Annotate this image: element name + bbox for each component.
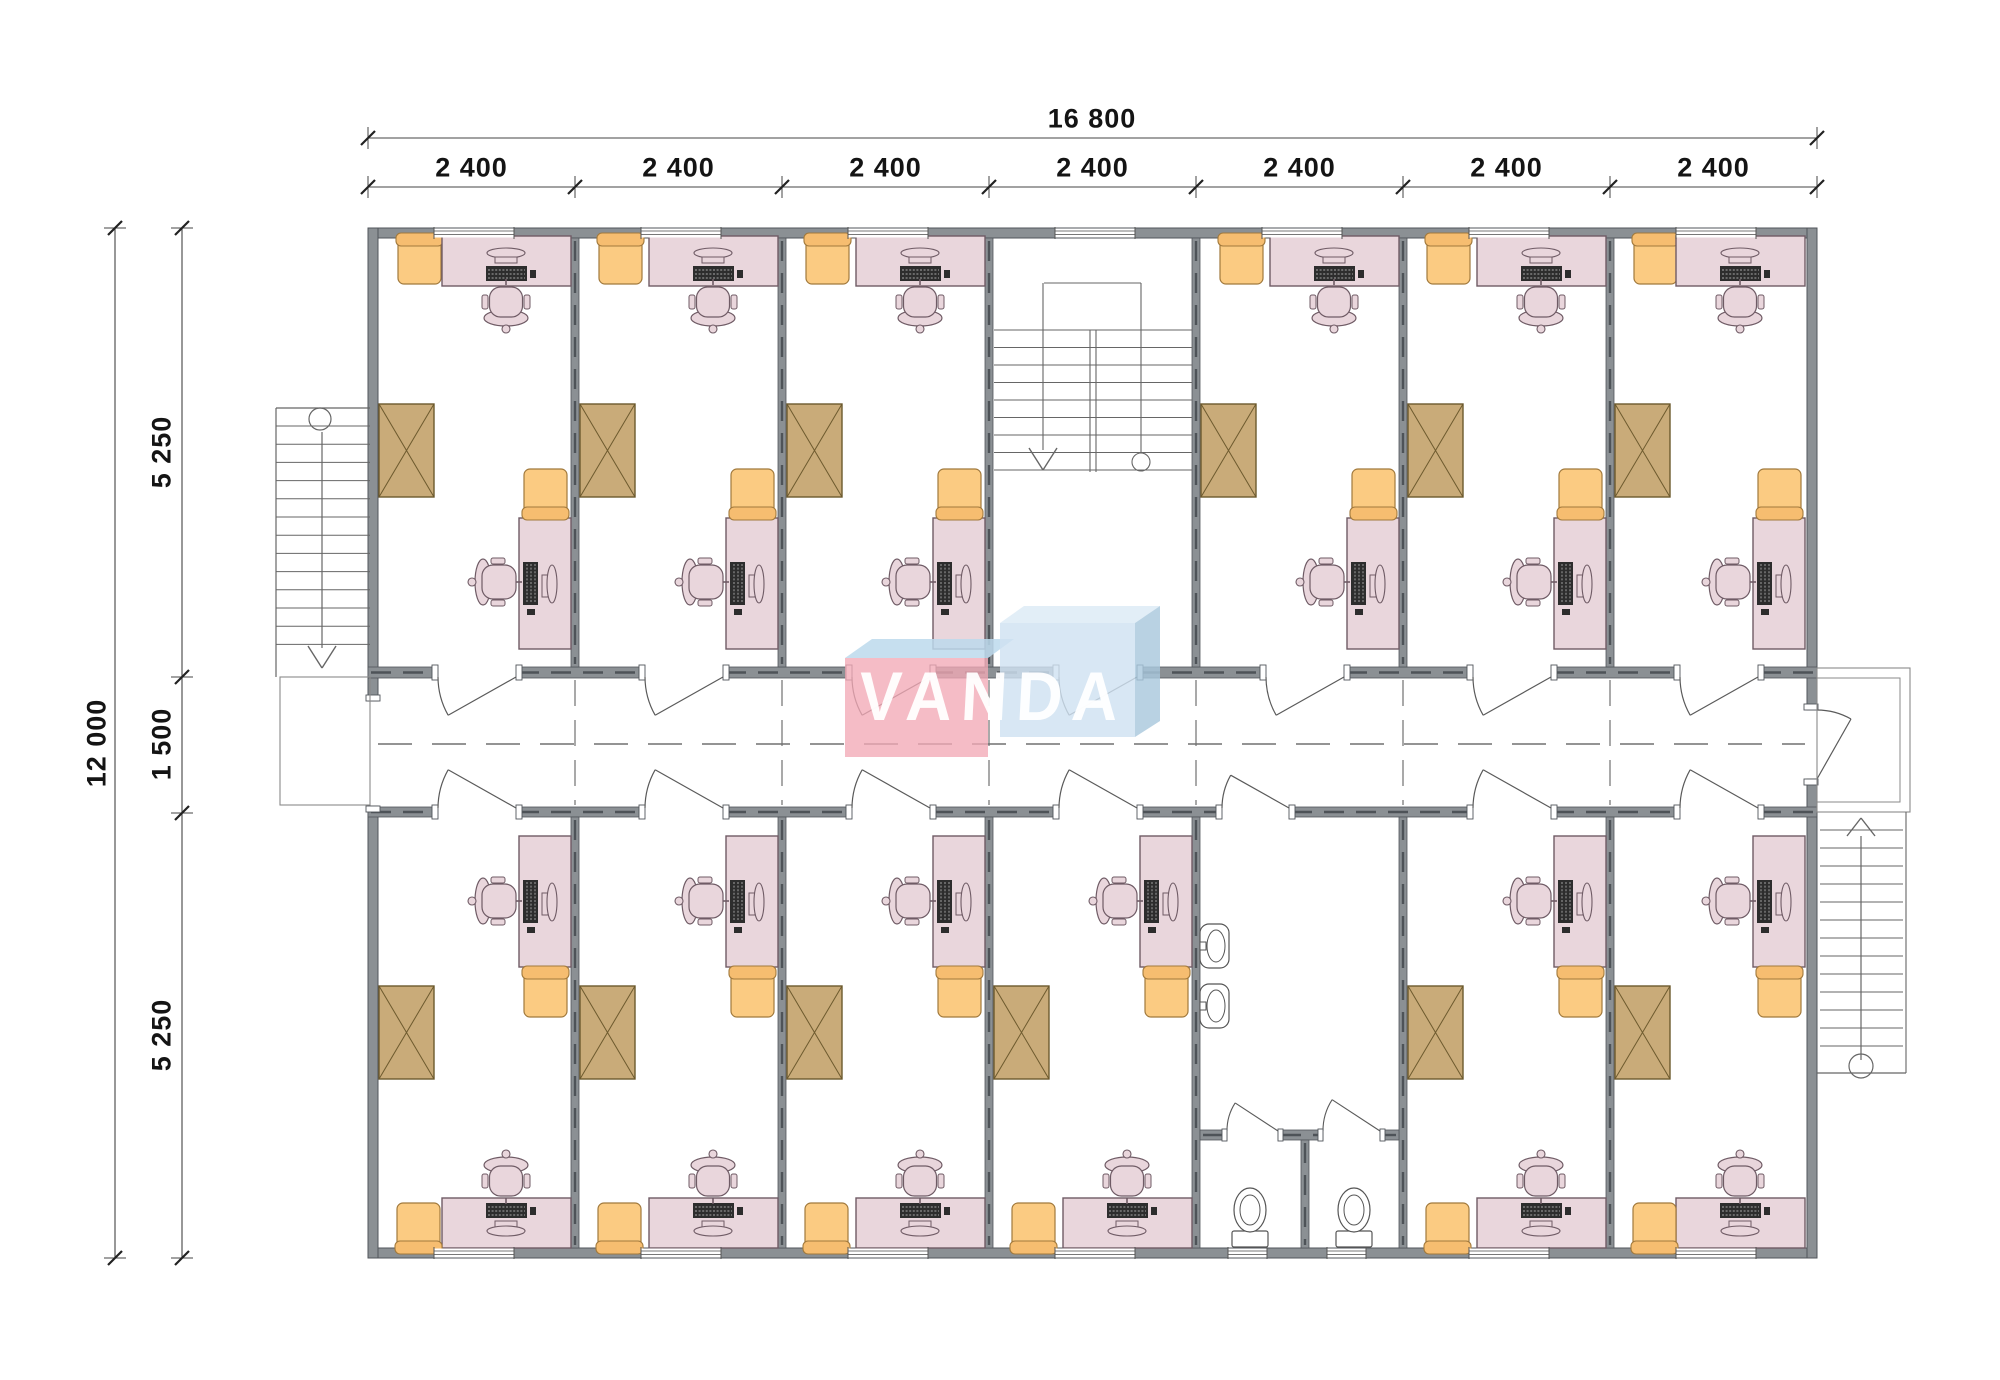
- floor-plan-page: VANDA 16 8002 4002 4002 4002 4002 4002 4…: [0, 0, 2000, 1380]
- interior-wall: [1289, 807, 1473, 817]
- window: [1327, 1247, 1366, 1259]
- interior-wall: [1192, 238, 1200, 667]
- dimension-label-left-segment-3: 5 250: [147, 999, 178, 1072]
- office-chair: [689, 1150, 737, 1204]
- office-chair: [896, 1150, 944, 1204]
- visitor-armchair: [1143, 966, 1190, 1017]
- office-chair: [896, 279, 944, 333]
- visitor-armchair: [596, 1203, 643, 1254]
- office-chair: [1503, 558, 1557, 606]
- interior-wall: [1551, 667, 1680, 678]
- interior-wall: [1278, 1130, 1323, 1140]
- interior-wall: [985, 238, 993, 667]
- room-door: [1260, 665, 1350, 715]
- window: [641, 227, 721, 239]
- interior-wall: [1551, 807, 1680, 817]
- room-door: [1216, 775, 1295, 819]
- office-chair: [1517, 1150, 1565, 1204]
- office-desk: [442, 1198, 571, 1248]
- dimension-label-left-total: 12 000: [82, 699, 113, 788]
- office-chair: [1296, 558, 1350, 606]
- office-desk: [1676, 236, 1805, 286]
- exterior-wall: [368, 806, 378, 1258]
- interior-wall: [571, 238, 579, 667]
- interior-wall: [1192, 817, 1200, 1248]
- office-desk: [1477, 236, 1606, 286]
- office-desk: [726, 836, 778, 967]
- interior-wall: [723, 807, 852, 817]
- dimension-label-bay-6: 2 400: [1470, 153, 1543, 184]
- visitor-armchair: [936, 469, 983, 520]
- office-desk: [1753, 836, 1805, 967]
- left-exterior-stair: [276, 408, 370, 805]
- interior-wall: [1606, 238, 1614, 667]
- room-door: [1053, 770, 1143, 819]
- office-chair: [1103, 1150, 1151, 1204]
- storage-cabinet: [787, 986, 842, 1079]
- storage-cabinet: [787, 404, 842, 497]
- office-chair: [482, 1150, 530, 1204]
- office-desk: [1753, 518, 1805, 649]
- office-chair: [1503, 877, 1557, 925]
- visitor-armchair: [729, 966, 776, 1017]
- window: [848, 1247, 928, 1259]
- visitor-armchair: [729, 469, 776, 520]
- office-chair: [1716, 279, 1764, 333]
- visitor-armchair: [1350, 469, 1397, 520]
- visitor-armchair: [1632, 233, 1679, 284]
- room-door: [432, 770, 522, 819]
- visitor-armchair: [1010, 1203, 1057, 1254]
- room-door: [639, 665, 729, 715]
- office-desk: [856, 1198, 985, 1248]
- dimension-label-bay-4: 2 400: [1056, 153, 1129, 184]
- visitor-armchair: [1631, 1203, 1678, 1254]
- storage-cabinet: [1201, 404, 1256, 497]
- corridor-left-opening: [366, 695, 380, 812]
- toilet: [1232, 1188, 1268, 1247]
- room-door: [432, 665, 522, 715]
- interior-wall: [1758, 667, 1817, 678]
- window: [1262, 227, 1342, 239]
- office-desk: [1554, 836, 1606, 967]
- storage-cabinet: [1615, 404, 1670, 497]
- toilet: [1336, 1188, 1372, 1247]
- visitor-armchair: [1424, 1203, 1471, 1254]
- room-door: [1674, 665, 1764, 715]
- office-chair: [1716, 1150, 1764, 1204]
- visitor-armchair: [395, 1203, 442, 1254]
- interior-wall: [778, 238, 786, 667]
- doors-and-windows: [366, 227, 1851, 1259]
- office-chair: [468, 877, 522, 925]
- office-desk: [1270, 236, 1399, 286]
- office-chair: [1089, 877, 1143, 925]
- wash-basin: [1200, 984, 1229, 1028]
- office-desk: [933, 518, 985, 649]
- visitor-armchair: [1218, 233, 1265, 284]
- interior-wall: [516, 667, 645, 678]
- window: [434, 227, 514, 239]
- visitor-armchair: [522, 469, 569, 520]
- interior-wall: [1301, 1140, 1309, 1248]
- window: [1469, 1247, 1549, 1259]
- office-desk: [1347, 518, 1399, 649]
- office-chair: [468, 558, 522, 606]
- storage-cabinet: [580, 986, 635, 1079]
- visitor-armchair: [1557, 469, 1604, 520]
- office-desk: [519, 836, 571, 967]
- storage-cabinet: [379, 986, 434, 1079]
- exterior-wall: [1807, 228, 1817, 710]
- visitor-armchair: [936, 966, 983, 1017]
- dimension-label-top-total: 16 800: [1048, 104, 1137, 135]
- interior-wall: [1606, 817, 1614, 1248]
- window: [1469, 227, 1549, 239]
- visitor-armchair: [1557, 966, 1604, 1017]
- office-chair: [482, 279, 530, 333]
- office-chair: [882, 877, 936, 925]
- right-exterior-stair: [1817, 668, 1910, 1078]
- visitor-armchair: [597, 233, 644, 284]
- visitor-armchair: [804, 233, 851, 284]
- visitor-armchair: [1756, 469, 1803, 520]
- dimension-label-bay-2: 2 400: [642, 153, 715, 184]
- window: [848, 227, 928, 239]
- visitor-armchair: [1425, 233, 1472, 284]
- office-chair: [1310, 279, 1358, 333]
- window: [434, 1247, 514, 1259]
- stall-door: [1222, 1103, 1283, 1141]
- dimension-label-bay-7: 2 400: [1677, 153, 1750, 184]
- dimension-label-bay-5: 2 400: [1263, 153, 1336, 184]
- storage-cabinet: [994, 986, 1049, 1079]
- office-desk: [726, 518, 778, 649]
- storage-cabinet: [1408, 404, 1463, 497]
- interior-wall: [368, 667, 438, 678]
- room-door: [1467, 665, 1557, 715]
- visitor-armchair: [522, 966, 569, 1017]
- office-chair: [1517, 279, 1565, 333]
- window: [1676, 227, 1756, 239]
- office-desk: [856, 236, 985, 286]
- exterior-wall: [1807, 779, 1817, 1258]
- interior-wall: [516, 807, 645, 817]
- interior-wall: [723, 667, 852, 678]
- office-chair: [1702, 877, 1756, 925]
- office-chair: [1702, 558, 1756, 606]
- storage-cabinet: [580, 404, 635, 497]
- office-desk: [933, 836, 985, 967]
- dimension-label-left-segment-2: 1 500: [147, 708, 178, 781]
- office-desk: [442, 236, 571, 286]
- window: [1055, 227, 1135, 239]
- office-desk: [649, 1198, 778, 1248]
- office-desk: [1554, 518, 1606, 649]
- room-door: [1467, 770, 1557, 819]
- interior-wall: [1399, 238, 1407, 667]
- office-desk: [1063, 1198, 1192, 1248]
- storage-cabinet: [379, 404, 434, 497]
- visitor-armchair: [1756, 966, 1803, 1017]
- storage-cabinet: [1408, 986, 1463, 1079]
- wash-basin: [1200, 924, 1229, 968]
- office-chair: [689, 279, 737, 333]
- office-desk: [1140, 836, 1192, 967]
- interior-wall: [985, 817, 993, 1248]
- visitor-armchair: [803, 1203, 850, 1254]
- interior-wall: [930, 807, 1059, 817]
- office-chair: [882, 558, 936, 606]
- office-desk: [649, 236, 778, 286]
- room-door: [639, 770, 729, 819]
- dimension-label-bay-3: 2 400: [849, 153, 922, 184]
- exterior-wall: [368, 228, 378, 701]
- interior-wall: [1399, 817, 1407, 1248]
- bathroom-fixtures: [1200, 924, 1372, 1247]
- office-desk: [519, 518, 571, 649]
- room-door: [1674, 770, 1764, 819]
- window: [1055, 1247, 1135, 1259]
- central-stairwell: [994, 283, 1192, 472]
- storage-cabinet: [1615, 986, 1670, 1079]
- office-chair: [675, 877, 729, 925]
- stall-door: [1318, 1100, 1385, 1141]
- interior-wall: [571, 817, 579, 1248]
- interior-wall: [1137, 807, 1222, 817]
- room-door: [846, 770, 936, 819]
- interior-wall: [1344, 667, 1473, 678]
- interior-wall: [778, 817, 786, 1248]
- watermark-text: VANDA: [857, 656, 1129, 736]
- corridor-right-door: [1804, 704, 1851, 785]
- dimension-label-bay-1: 2 400: [435, 153, 508, 184]
- interior-wall: [1758, 807, 1817, 817]
- office-desk: [1676, 1198, 1805, 1248]
- window: [1676, 1247, 1756, 1259]
- office-desk: [1477, 1198, 1606, 1248]
- window: [641, 1247, 721, 1259]
- window: [1228, 1247, 1267, 1259]
- dimension-label-left-segment-1: 5 250: [147, 416, 178, 489]
- office-chair: [675, 558, 729, 606]
- visitor-armchair: [396, 233, 443, 284]
